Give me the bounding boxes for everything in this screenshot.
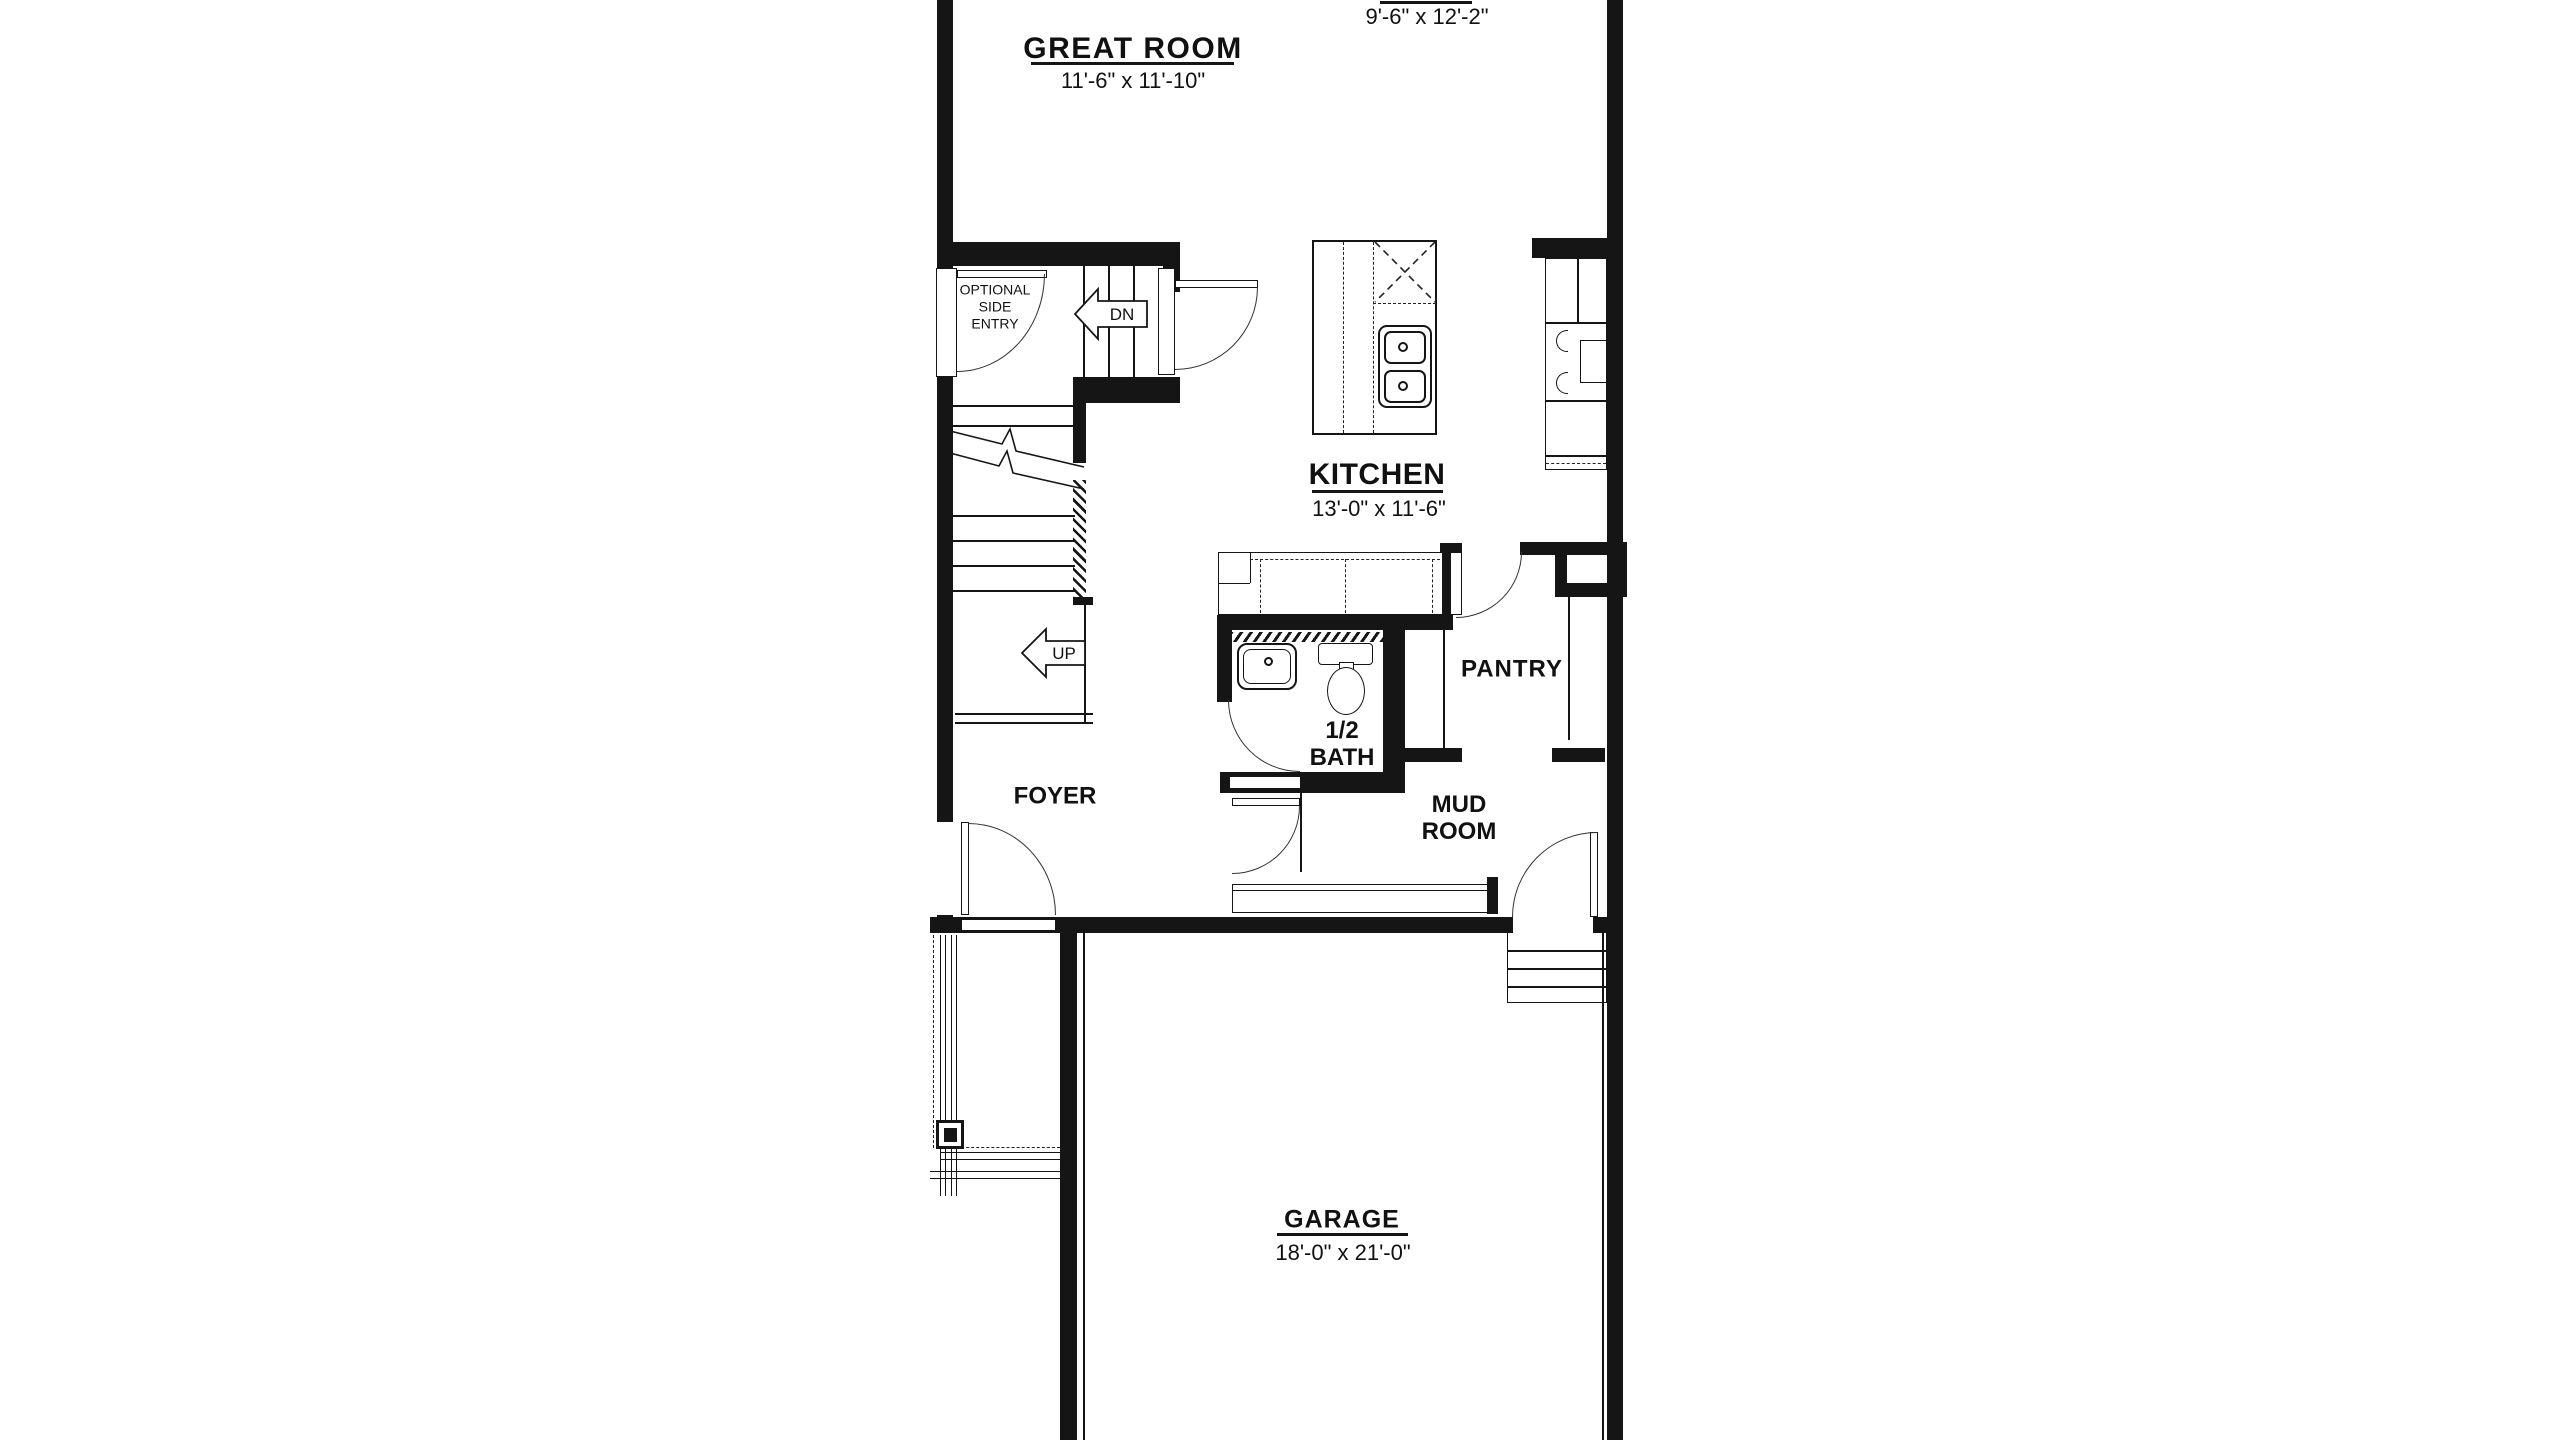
side-entry-line3: ENTRY [960,316,1031,333]
kitchen-underline [1312,490,1443,493]
garage-dims: 18'-0" x 21'-0" [1275,1240,1410,1266]
pantry-label: PANTRY [1461,656,1563,683]
stair-break-line [950,429,1084,467]
half-bath-line2: BATH [1310,744,1375,771]
great-room-underline [1031,62,1234,65]
island-cabinet-x [1375,242,1435,302]
dining-dims: 9'-6" x 12'-2" [1365,4,1488,30]
up-label: UP [1052,644,1076,664]
mud-room-label: MUD ROOM [1422,791,1497,845]
mud-room-line1: MUD [1422,791,1497,818]
mud-room-line2: ROOM [1422,818,1497,845]
kitchen-title: KITCHEN [1309,458,1446,492]
great-room-dims: 11'-6" x 11'-10" [1061,68,1205,94]
side-entry-line2: SIDE [960,299,1031,316]
floor-plan: GREAT ROOM 11'-6" x 11'-10" 9'-6" x 12'-… [0,0,2560,1440]
great-room-title: GREAT ROOM [1023,32,1242,66]
kitchen-dims: 13'-0" x 11'-6" [1312,496,1446,522]
side-entry-label: OPTIONAL SIDE ENTRY [960,282,1031,333]
half-bath-line1: 1/2 [1310,717,1375,744]
garage-title: GARAGE [1284,1206,1400,1235]
foyer-label: FOYER [1014,783,1097,810]
garage-underline [1277,1233,1408,1236]
half-bath-label: 1/2 BATH [1310,717,1375,771]
stair-break-line [950,451,1084,489]
dn-label: DN [1110,305,1135,325]
plan-linework-overlay [0,0,2560,1440]
side-entry-line1: OPTIONAL [960,282,1031,299]
